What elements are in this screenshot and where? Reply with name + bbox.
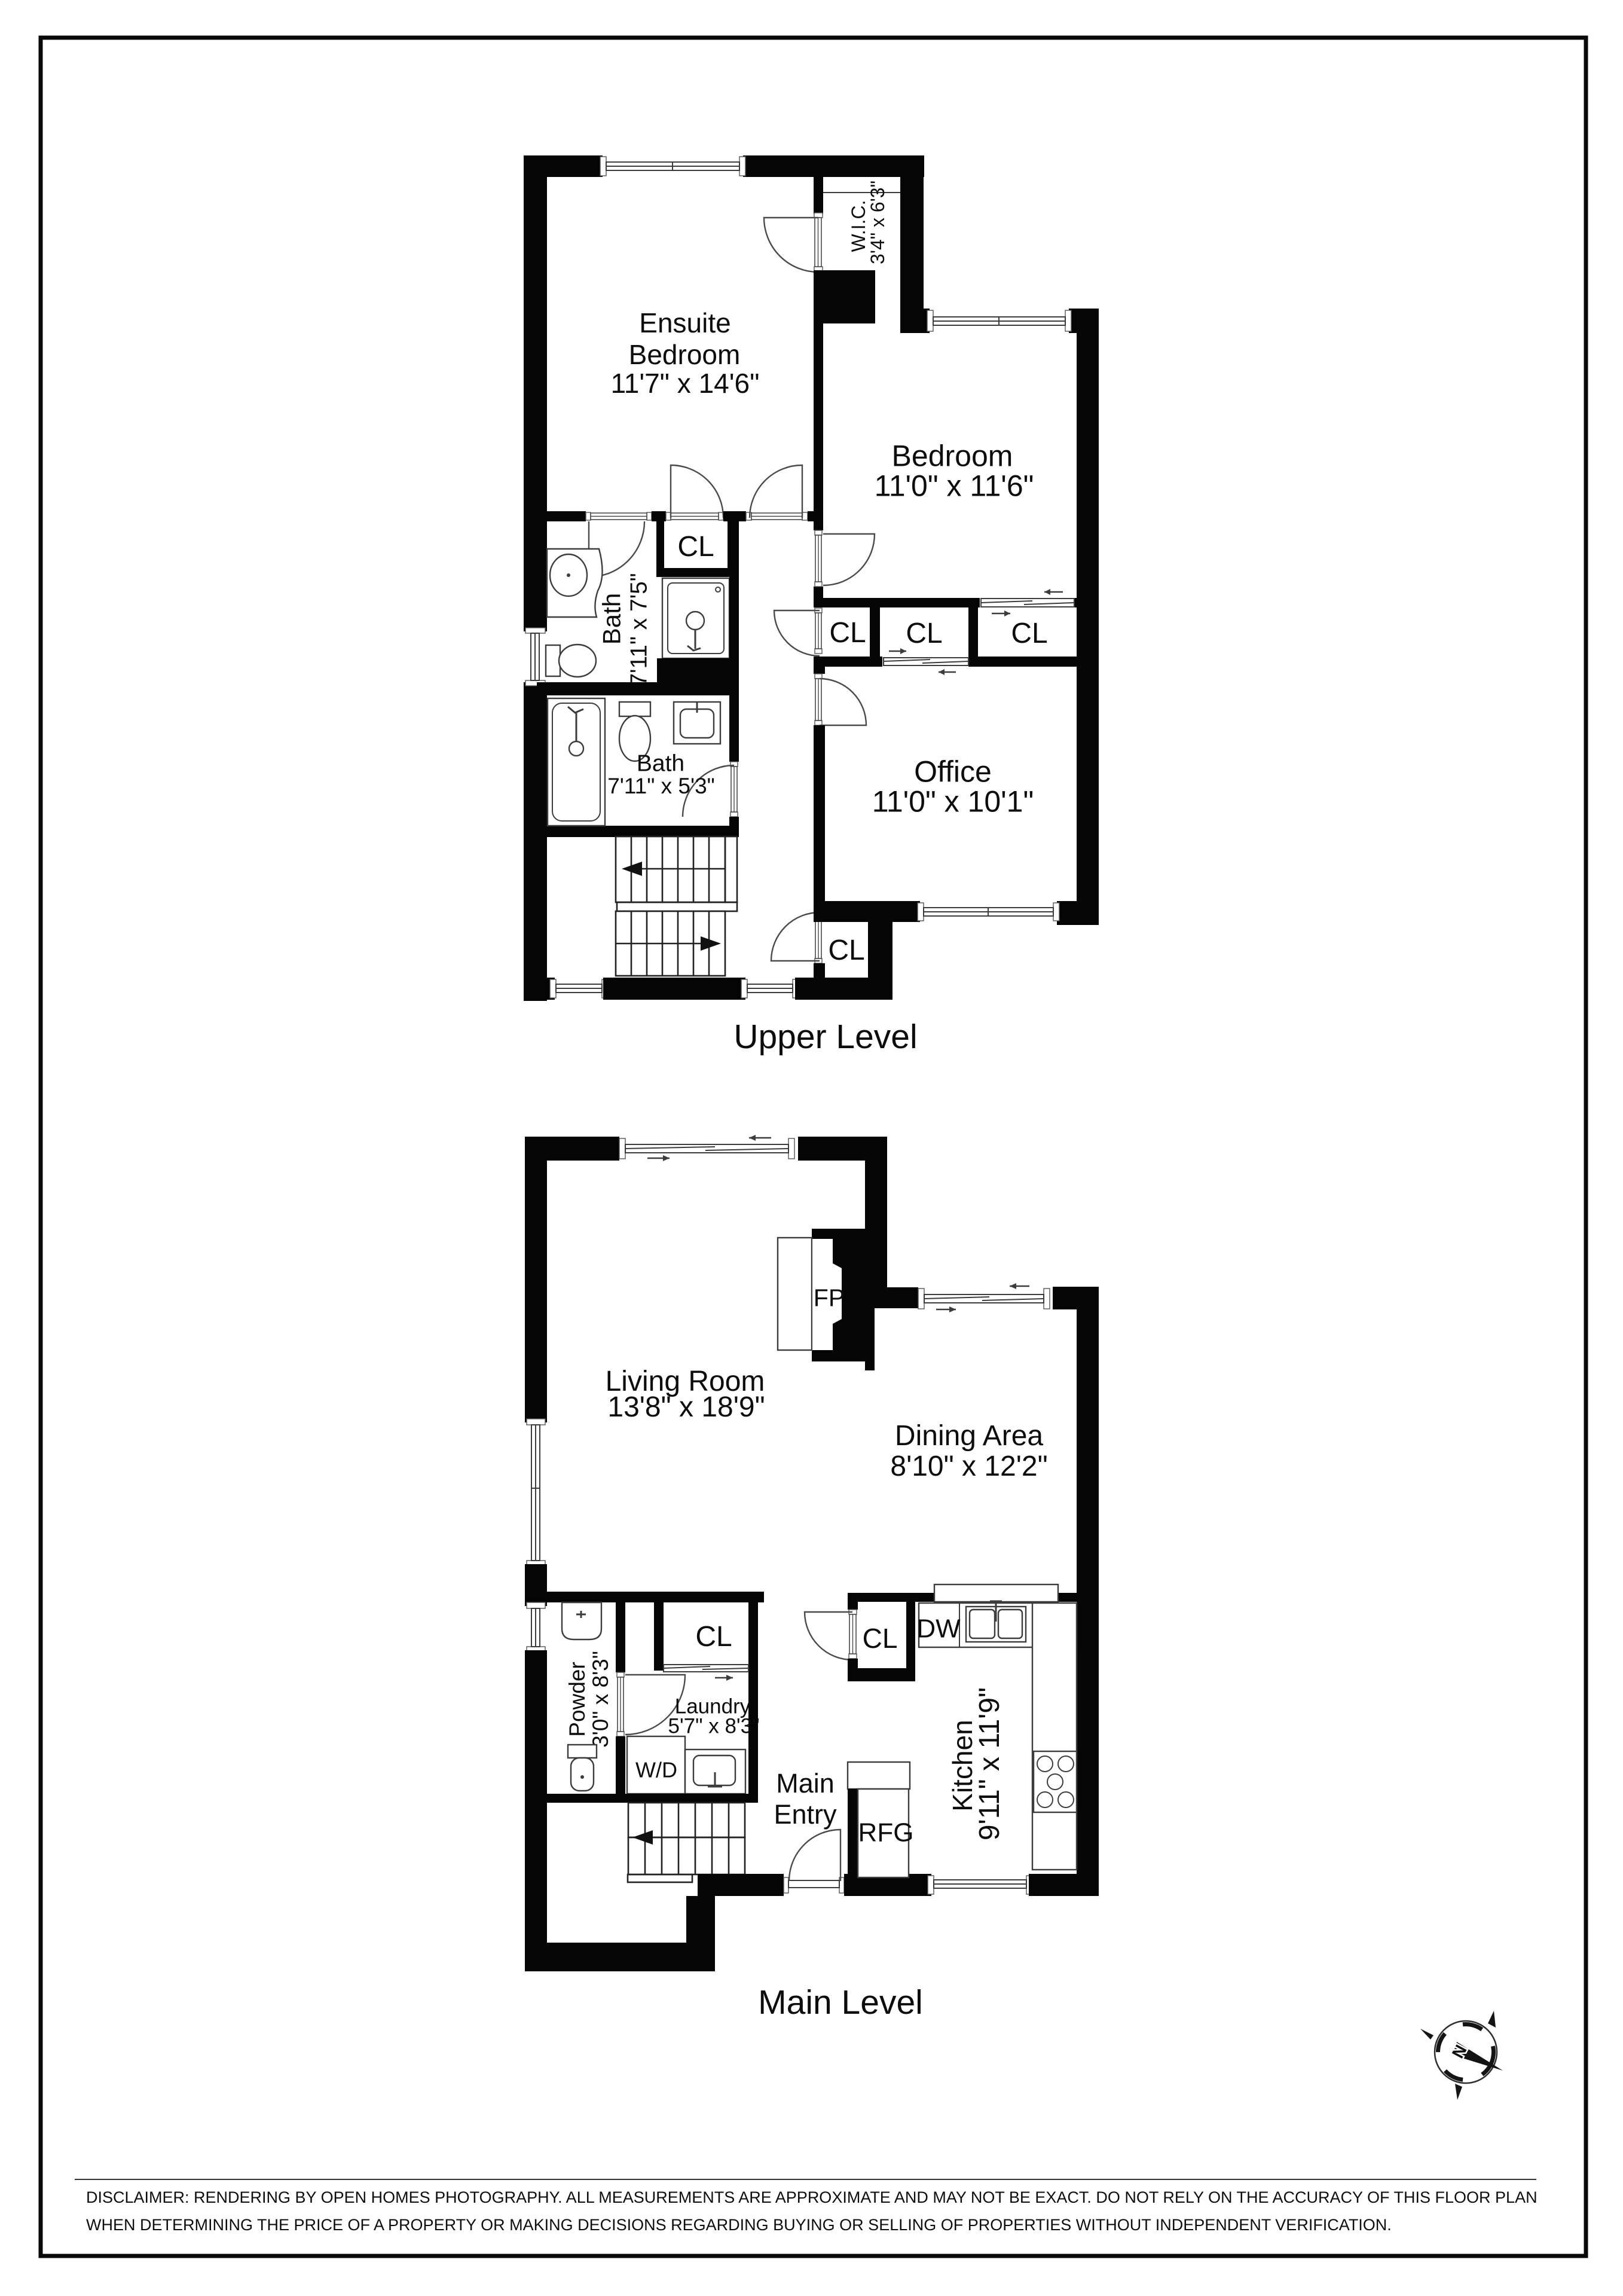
svg-text:Powder: Powder: [565, 1662, 589, 1736]
svg-text:Dining Area: Dining Area: [895, 1420, 1043, 1452]
svg-text:CL: CL: [695, 1621, 732, 1653]
svg-text:11'0" x 10'1": 11'0" x 10'1": [872, 785, 1034, 819]
svg-text:WHEN DETERMINING THE PRICE OF: WHEN DETERMINING THE PRICE OF A PROPERTY…: [86, 2216, 1392, 2234]
svg-text:Bedroom: Bedroom: [629, 339, 741, 370]
svg-text:CL: CL: [677, 531, 714, 563]
svg-text:9'11" x 11'9": 9'11" x 11'9": [974, 1687, 1005, 1840]
svg-text:5'7" x 8'3": 5'7" x 8'3": [668, 1714, 759, 1738]
svg-text:RFG: RFG: [858, 1818, 914, 1847]
svg-text:W.I.C.: W.I.C.: [848, 200, 869, 252]
svg-text:W/D: W/D: [635, 1758, 677, 1782]
svg-text:CL: CL: [863, 1623, 898, 1654]
svg-text:CL: CL: [906, 618, 942, 649]
svg-text:Main: Main: [776, 1768, 835, 1799]
svg-text:Bath: Bath: [598, 593, 626, 645]
svg-text:11'7" x 14'6": 11'7" x 14'6": [611, 368, 760, 399]
svg-text:Bath: Bath: [637, 751, 684, 777]
svg-text:Office: Office: [914, 755, 992, 789]
svg-text:CL: CL: [829, 617, 866, 649]
svg-text:11'0" x 11'6": 11'0" x 11'6": [875, 469, 1034, 503]
svg-text:FP: FP: [814, 1284, 845, 1311]
svg-text:Main Level: Main Level: [758, 1983, 923, 2022]
svg-text:13'8" x 18'9": 13'8" x 18'9": [607, 1391, 765, 1423]
svg-text:Entry: Entry: [774, 1799, 837, 1830]
svg-text:3'4" x 6'3": 3'4" x 6'3": [867, 181, 888, 264]
svg-text:Bedroom: Bedroom: [892, 439, 1013, 473]
svg-text:3'0" x 8'3": 3'0" x 8'3": [588, 1651, 613, 1748]
svg-text:DW: DW: [916, 1614, 961, 1643]
svg-text:Ensuite: Ensuite: [639, 307, 730, 338]
svg-text:8'10" x 12'2": 8'10" x 12'2": [890, 1451, 1047, 1482]
svg-text:Upper Level: Upper Level: [733, 1018, 917, 1056]
svg-text:CL: CL: [1011, 618, 1047, 649]
svg-text:DISCLAIMER: RENDERING BY OPEN: DISCLAIMER: RENDERING BY OPEN HOMES PHOT…: [86, 2188, 1538, 2206]
svg-text:7'11" x 7'5": 7'11" x 7'5": [626, 573, 652, 686]
svg-text:7'11" x 5'3": 7'11" x 5'3": [607, 774, 715, 798]
svg-text:CL: CL: [828, 935, 864, 966]
